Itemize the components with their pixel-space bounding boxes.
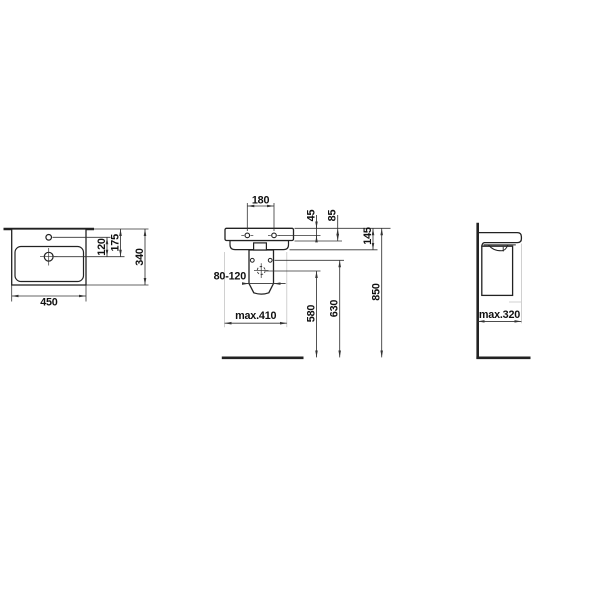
dim-label-450: 450 bbox=[40, 297, 58, 309]
technical-drawing-page: 120 175 340 450 bbox=[0, 0, 600, 600]
dim-label-630: 630 bbox=[329, 300, 341, 318]
dim-label-175: 175 bbox=[110, 234, 122, 252]
dim-label-145: 145 bbox=[362, 227, 374, 245]
dim-label-340: 340 bbox=[134, 248, 146, 266]
washbasin-dimension-diagram: 120 175 340 450 bbox=[0, 0, 600, 600]
side-view: max.320 bbox=[476, 223, 530, 359]
dim-label-180: 180 bbox=[252, 195, 270, 207]
front-view: 180 45 85 145 80-120 max.410 580 630 850 bbox=[214, 195, 391, 358]
dim-label-45: 45 bbox=[305, 210, 317, 222]
overflow-slot bbox=[254, 243, 267, 250]
dim-label-max320: max.320 bbox=[479, 309, 520, 321]
semi-pedestal-side bbox=[482, 246, 513, 295]
basin-outline-front bbox=[225, 228, 294, 240]
hole-spacing-extensions bbox=[247, 203, 274, 231]
dim-label-80-120: 80-120 bbox=[214, 270, 247, 282]
top-view: 120 175 340 450 bbox=[4, 229, 149, 309]
dim-label-850: 850 bbox=[371, 283, 383, 301]
dim-label-120: 120 bbox=[96, 238, 108, 256]
dim-label-85: 85 bbox=[327, 210, 339, 222]
dim-label-max410: max.410 bbox=[235, 310, 276, 322]
dim-label-580: 580 bbox=[305, 305, 317, 323]
